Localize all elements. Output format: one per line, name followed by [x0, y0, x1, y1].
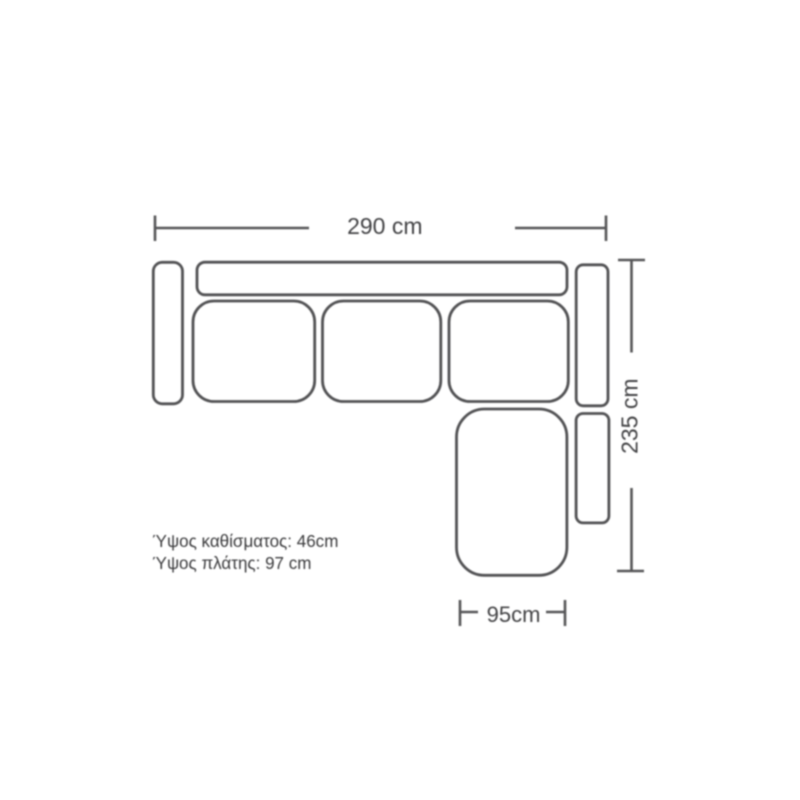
svg-text:Ύψος καθίσματος: 46cm: Ύψος καθίσματος: 46cm — [152, 531, 338, 551]
svg-text:235 cm: 235 cm — [617, 378, 643, 453]
svg-text:95cm: 95cm — [487, 602, 541, 627]
svg-text:Ύψος πλάτης: 97 cm: Ύψος πλάτης: 97 cm — [152, 553, 311, 573]
svg-text:290 cm: 290 cm — [347, 213, 422, 239]
